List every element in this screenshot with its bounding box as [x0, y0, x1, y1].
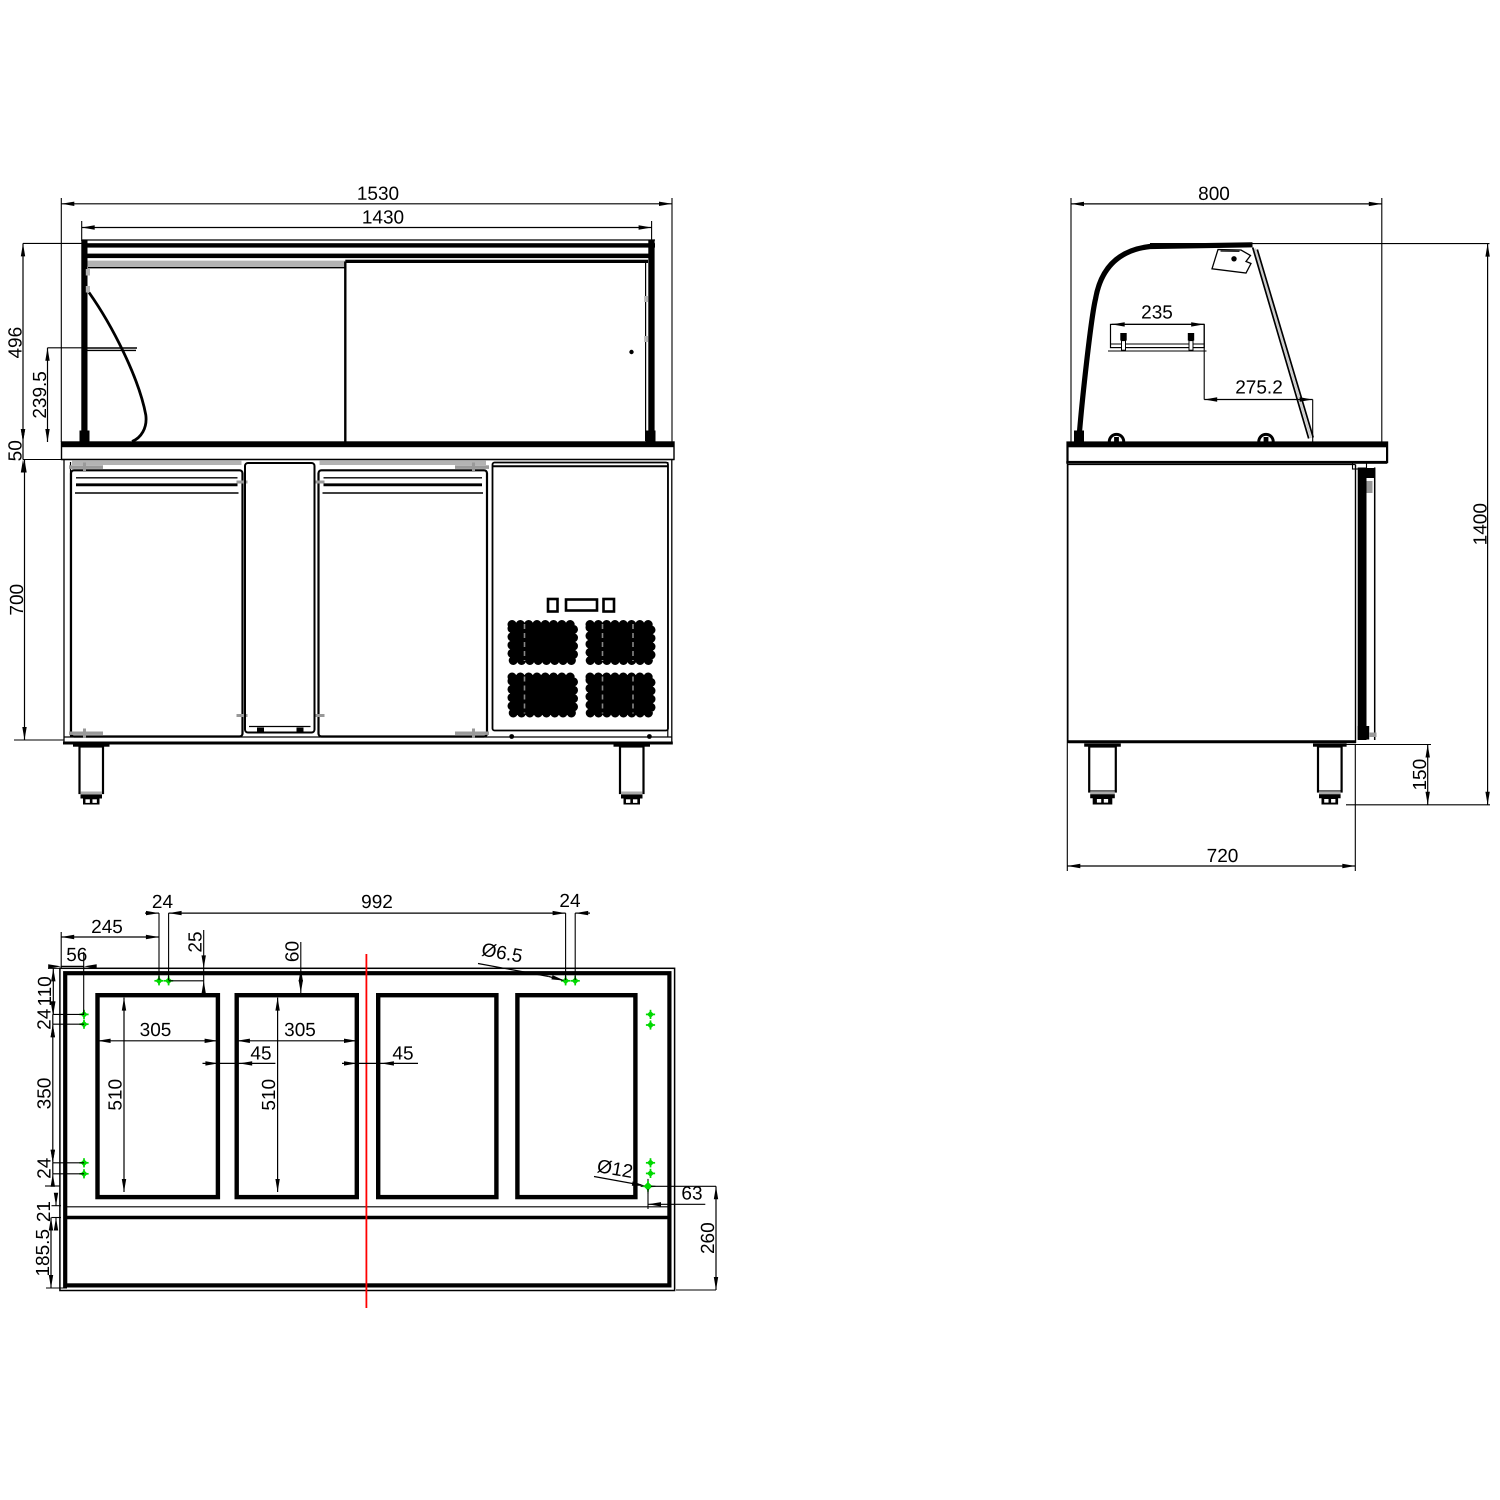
svg-text:235: 235 [1141, 302, 1173, 323]
svg-text:305: 305 [284, 1020, 316, 1041]
svg-text:1430: 1430 [362, 207, 404, 228]
svg-text:60: 60 [282, 941, 303, 962]
svg-text:700: 700 [7, 584, 28, 616]
svg-text:50: 50 [5, 440, 26, 461]
svg-text:496: 496 [5, 327, 26, 359]
svg-text:25: 25 [185, 931, 206, 952]
svg-text:150: 150 [1410, 759, 1431, 791]
svg-text:239.5: 239.5 [30, 371, 51, 419]
svg-text:510: 510 [105, 1079, 126, 1111]
svg-text:305: 305 [140, 1020, 172, 1041]
svg-text:45: 45 [250, 1043, 271, 1064]
svg-text:720: 720 [1207, 846, 1239, 867]
svg-text:24: 24 [559, 891, 581, 912]
svg-text:45: 45 [392, 1043, 413, 1064]
svg-text:21: 21 [34, 1201, 55, 1222]
svg-text:245: 245 [91, 917, 123, 938]
svg-text:800: 800 [1198, 184, 1230, 205]
svg-text:260: 260 [698, 1222, 719, 1254]
svg-text:350: 350 [34, 1078, 55, 1110]
svg-text:185.5: 185.5 [33, 1229, 54, 1277]
svg-text:992: 992 [361, 892, 393, 913]
svg-text:56: 56 [66, 945, 87, 966]
svg-text:1530: 1530 [357, 184, 399, 205]
svg-text:510: 510 [259, 1079, 280, 1111]
svg-text:275.2: 275.2 [1235, 377, 1283, 398]
svg-text:24: 24 [152, 892, 174, 913]
svg-text:1400: 1400 [1470, 503, 1491, 545]
